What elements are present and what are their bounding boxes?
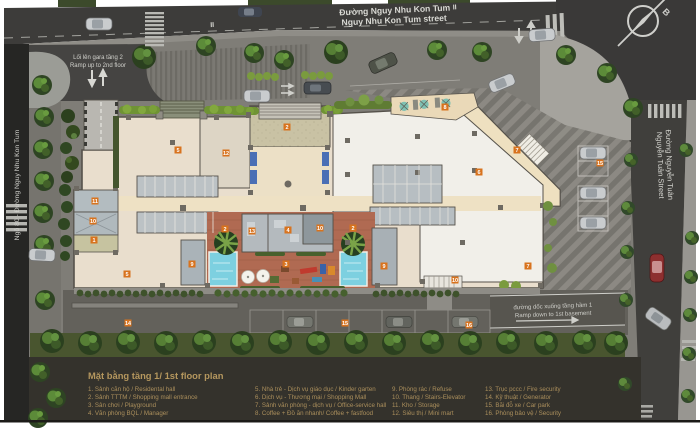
svg-text:5: 5 — [176, 148, 179, 154]
svg-text:10: 10 — [317, 226, 323, 232]
svg-text:9: 9 — [190, 262, 193, 268]
svg-text:10: 10 — [452, 278, 458, 284]
svg-text:9: 9 — [382, 264, 385, 270]
svg-text:12: 12 — [223, 151, 229, 157]
svg-text:4. Văn phòng BQL / Manager: 4. Văn phòng BQL / Manager — [88, 410, 168, 417]
svg-text:14: 14 — [125, 321, 132, 327]
svg-text:11. Kho / Storage: 11. Kho / Storage — [392, 402, 440, 409]
svg-text:16. Phòng bảo vệ / Security: 16. Phòng bảo vệ / Security — [485, 410, 562, 417]
svg-text:10: 10 — [90, 219, 96, 225]
svg-text:12. Siêu thị / Mini mart: 12. Siêu thị / Mini mart — [392, 410, 454, 417]
svg-text:5. Nhà trẻ - Dịch vụ giáo dục: 5. Nhà trẻ - Dịch vụ giáo dục / Kinder g… — [255, 386, 376, 393]
svg-text:6: 6 — [477, 170, 480, 176]
svg-text:11: 11 — [92, 199, 98, 205]
svg-text:15: 15 — [597, 161, 603, 167]
svg-text:3. Sân chơi / Playground: 3. Sân chơi / Playground — [88, 402, 157, 409]
svg-text:7: 7 — [526, 264, 529, 270]
svg-text:II: II — [453, 4, 457, 11]
svg-text:7. Sảnh văn phòng - dịch vụ /: 7. Sảnh văn phòng - dịch vụ / Office-ser… — [255, 402, 386, 409]
svg-text:8. Coffee + Đồ ăn nhanh/ Coffe: 8. Coffee + Đồ ăn nhanh/ Coffee + fastfo… — [255, 410, 374, 417]
svg-text:10. Thang / Stairs-Elevator: 10. Thang / Stairs-Elevator — [392, 394, 466, 401]
svg-text:9. Phòng rác / Refuse: 9. Phòng rác / Refuse — [392, 386, 452, 393]
svg-text:6. Dịch vụ - Thương mại / Shop: 6. Dịch vụ - Thương mại / Shopping Mall — [255, 394, 366, 401]
svg-text:13: 13 — [249, 229, 255, 235]
svg-text:2: 2 — [285, 125, 288, 131]
svg-text:7: 7 — [515, 148, 518, 154]
svg-text:15. Bãi đỗ xe / Car park: 15. Bãi đỗ xe / Car park — [485, 402, 551, 409]
svg-text:14. Kỹ thuật / Generator: 14. Kỹ thuật / Generator — [485, 394, 551, 401]
svg-text:Ngõ 80 - Đường Nguy Nhu Kon Tu: Ngõ 80 - Đường Nguy Nhu Kon Tum — [14, 129, 21, 240]
svg-text:Lối lên gara tầng 2: Lối lên gara tầng 2 — [73, 55, 123, 61]
svg-text:Mặt bằng tầng 1/ 1st floor pla: Mặt bằng tầng 1/ 1st floor plan — [88, 370, 224, 381]
svg-text:1. Sảnh căn hộ / Residental ha: 1. Sảnh căn hộ / Residental hall — [88, 386, 175, 393]
svg-text:8: 8 — [443, 105, 446, 111]
svg-text:2: 2 — [223, 227, 226, 233]
svg-text:15: 15 — [342, 321, 348, 327]
svg-text:5: 5 — [125, 272, 128, 278]
svg-text:13. Trục pccc / Fire security: 13. Trục pccc / Fire security — [485, 386, 562, 393]
svg-text:3: 3 — [284, 262, 287, 268]
svg-text:1: 1 — [92, 238, 95, 244]
svg-text:2. Sảnh TTTM / Shopping mall e: 2. Sảnh TTTM / Shopping mall entrance — [88, 394, 198, 401]
svg-text:16: 16 — [466, 323, 472, 329]
svg-text:Ramp up to 2nd floor: Ramp up to 2nd floor — [70, 63, 126, 69]
svg-text:II: II — [210, 22, 214, 29]
svg-text:2: 2 — [351, 226, 354, 232]
